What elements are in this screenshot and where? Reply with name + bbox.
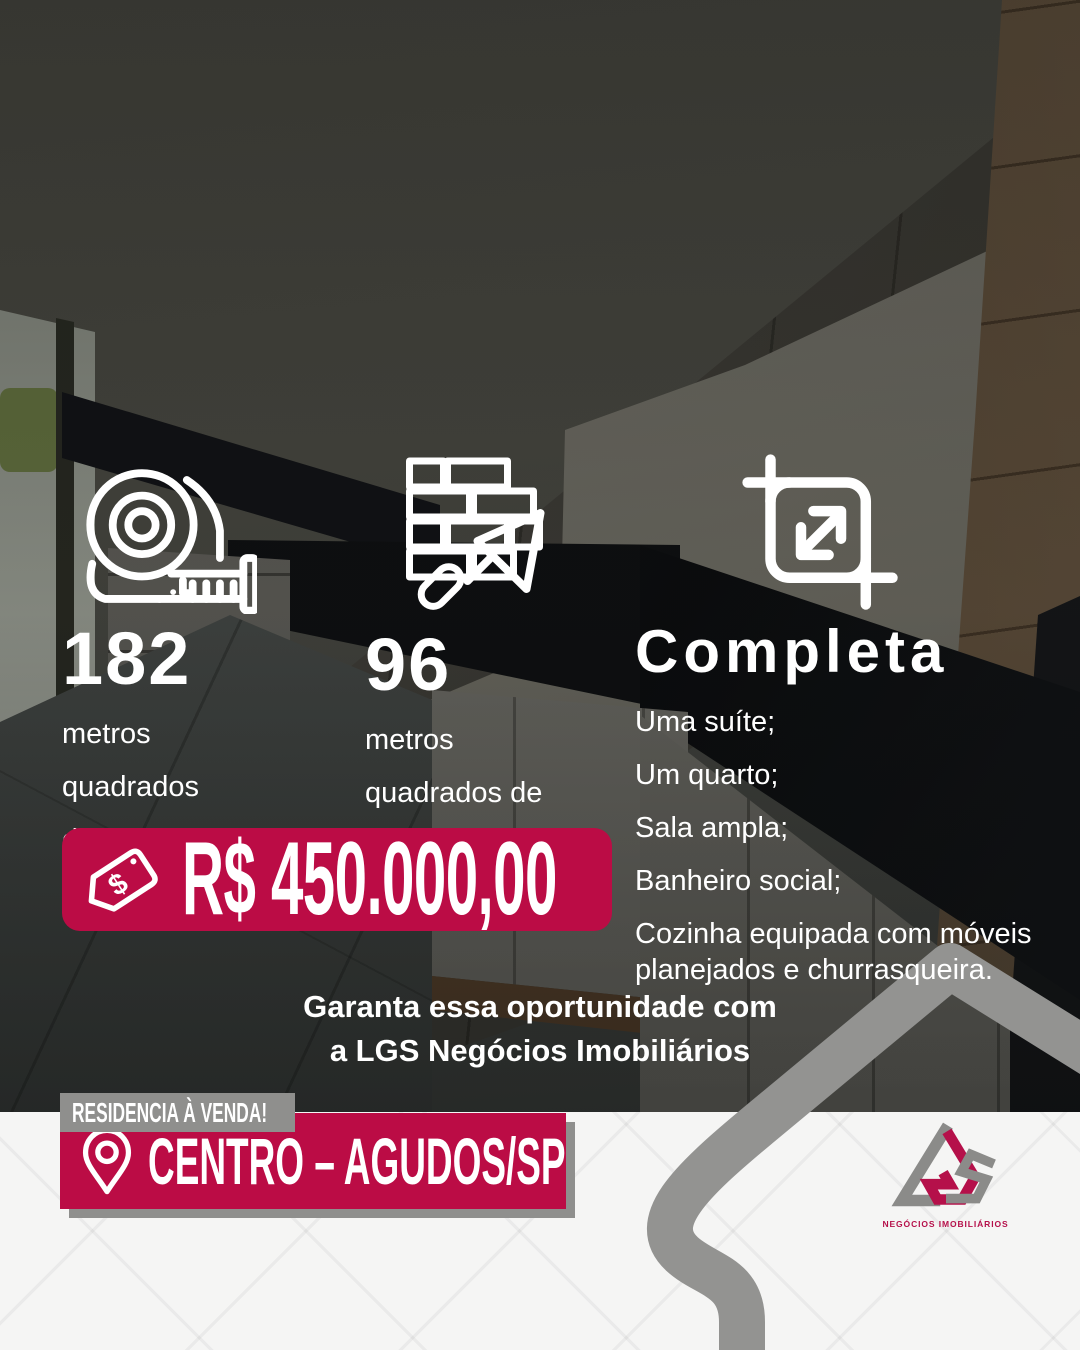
real-estate-flyer: 182 metros quadrados de terreno 96 metro… bbox=[0, 0, 1080, 1350]
list-item: Um quarto; bbox=[635, 757, 1055, 793]
built-area-value: 96 bbox=[365, 628, 665, 702]
amenities-list: Uma suíte; Um quarto; Sala ampla; Banhei… bbox=[635, 704, 1075, 988]
expand-icon bbox=[740, 452, 902, 614]
feature-complete: Completa Uma suíte; Um quarto; Sala ampl… bbox=[635, 452, 1075, 1005]
bricks-trowel-icon bbox=[395, 455, 555, 620]
price-value: R$ 450.000,00 bbox=[182, 828, 557, 931]
price-banner: $ R$ 450.000,00 bbox=[62, 828, 612, 931]
price-tag-icon: $ bbox=[78, 835, 164, 925]
feature-built-area: 96 metros quadrados de área construída bbox=[365, 455, 665, 873]
cta-line1: Garanta essa oportunidade com bbox=[0, 985, 1080, 1029]
for-sale-ribbon: RESIDENCIA À VENDA! bbox=[60, 1093, 295, 1132]
for-sale-label: RESIDENCIA À VENDA! bbox=[72, 1097, 267, 1129]
feature-lot-area: 182 metros quadrados de terreno bbox=[62, 462, 362, 867]
list-item: Banheiro social; bbox=[635, 863, 1055, 899]
lgs-logo: NEGÓCIOS IMOBILIÁRIOS bbox=[868, 1116, 1023, 1229]
list-item: Sala ampla; bbox=[635, 810, 1055, 846]
logo-caption: NEGÓCIOS IMOBILIÁRIOS bbox=[868, 1219, 1023, 1229]
list-item: Cozinha equipada com móveis planejados e… bbox=[635, 916, 1055, 988]
cta-text: Garanta essa oportunidade com a LGS Negó… bbox=[0, 985, 1080, 1073]
lot-area-value: 182 bbox=[62, 622, 362, 696]
location-pin-icon bbox=[80, 1126, 134, 1196]
tape-measure-icon bbox=[62, 462, 257, 614]
list-item: Uma suíte; bbox=[635, 704, 1055, 740]
cta-line2: a LGS Negócios Imobiliários bbox=[0, 1029, 1080, 1073]
location-label: CENTRO – AGUDOS/SP bbox=[148, 1123, 566, 1199]
complete-title: Completa bbox=[635, 622, 1075, 682]
lgs-logo-icon bbox=[884, 1116, 1008, 1212]
